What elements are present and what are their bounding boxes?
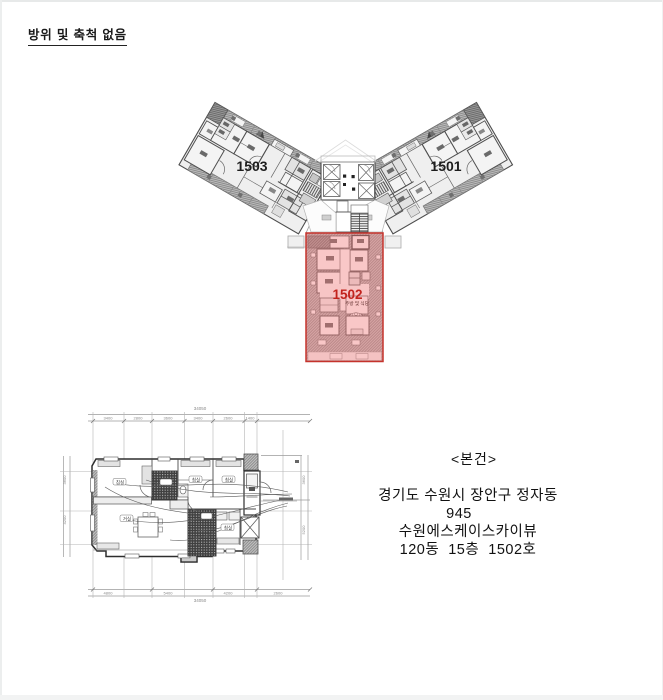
svg-text:4800: 4800 [104, 591, 114, 596]
svg-text:4200: 4200 [62, 515, 67, 525]
svg-text:1501: 1501 [430, 158, 461, 174]
svg-text:3400: 3400 [104, 416, 114, 421]
svg-text:1400: 1400 [246, 416, 256, 421]
svg-text:3600: 3600 [301, 475, 306, 485]
svg-text:침실: 침실 [225, 477, 233, 483]
svg-text:거실: 거실 [123, 516, 131, 523]
svg-text:2800: 2800 [134, 416, 144, 421]
svg-text:1503: 1503 [236, 158, 267, 174]
svg-text:3600: 3600 [62, 475, 67, 485]
svg-text:5400: 5400 [164, 591, 174, 596]
svg-text:침실: 침실 [192, 477, 200, 483]
svg-text:침실: 침실 [224, 525, 232, 531]
svg-text:4200: 4200 [224, 591, 234, 596]
svg-text:침실: 침실 [116, 479, 124, 485]
svg-text:3400: 3400 [194, 416, 204, 421]
svg-text:2600: 2600 [224, 416, 234, 421]
svg-text:5200: 5200 [301, 525, 306, 535]
svg-text:3600: 3600 [164, 416, 174, 421]
svg-text:1502: 1502 [332, 287, 362, 302]
svg-text:34050: 34050 [194, 598, 207, 603]
svg-text:34050: 34050 [194, 406, 207, 411]
svg-text:2600: 2600 [274, 591, 284, 596]
